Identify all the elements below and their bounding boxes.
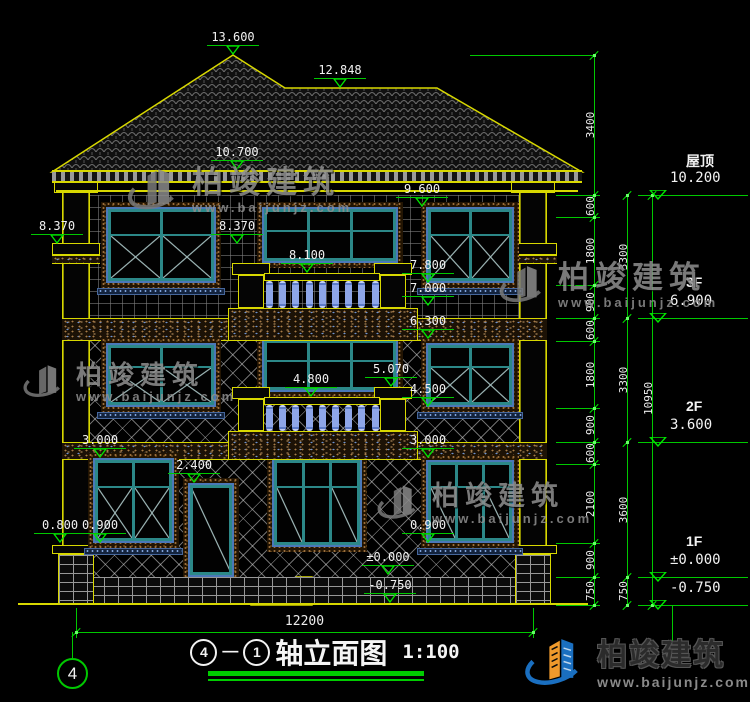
elevation-value: 3.000 [398,433,458,447]
watermark-title: 柏竣建筑 [192,167,352,200]
balcony-baluster [372,281,379,308]
elevation-value: 3.000 [70,433,130,447]
watermark: 柏竣建筑www.baijunjz.com [498,258,718,314]
elevation-value: -0.750 [360,578,420,592]
window-pane [304,487,331,543]
elevation-marker: 13.600 [203,30,263,57]
dim-label: 10950 [642,385,656,415]
brand-logo-footer: 柏竣建筑 www.baijunjz.com [524,618,750,702]
window-trim [267,453,367,552]
watermark-title: 柏竣建筑 [432,482,592,510]
elevation-value: 12.848 [310,63,370,77]
floor-label: 2F [686,398,746,414]
axis-circle-right: 1 [243,639,270,666]
floor-label: 1F [686,533,746,549]
elevation-triangle-icon [203,46,263,55]
dim-label: 600 [584,191,598,221]
drawing-title-block: 4 — 1 轴立面图 1:100 [160,634,490,670]
window-pane [134,487,170,539]
elevation-marker: 12.848 [310,63,370,90]
balcony-baluster [306,281,313,308]
axis-number-left: 4 [200,644,208,660]
floor-elevation: 3.600 [670,417,748,433]
window-pane-transom [276,462,303,487]
window-pane [331,487,358,543]
dim-tick-dot [626,317,629,320]
elevation-value: 4.800 [281,372,341,386]
window-sill [97,288,225,295]
balcony-baluster [319,281,326,308]
elevation-triangle-icon [164,474,224,483]
elevation-marker: 9.600 [392,182,452,209]
elevation-marker: 3.000 [70,433,130,460]
window-pane-transom [304,462,331,487]
watermark-url: www.baijunjz.com [558,295,718,310]
window-pane [471,367,511,403]
watermark: 柏竣建筑www.baijunjz.com [376,478,592,530]
elevation-value: 8.100 [277,248,337,262]
window-frame [274,460,360,545]
entry-door [188,483,234,577]
watermark-url: www.baijunjz.com [192,200,352,215]
watermark-logo-icon [376,478,424,530]
balcony-baluster [306,405,313,431]
ground-line [18,603,588,605]
floor-elevation: ±0.000 [670,552,748,568]
window-casement [303,462,331,543]
balcony-baluster [332,281,339,308]
plinth [62,577,547,604]
balcony-pedestal [238,399,264,431]
drawing-title-text: 轴立面图 [275,632,387,672]
dim-label: 900 [584,410,598,440]
brand-logo-title: 柏竣建筑 [597,630,750,674]
window-pane-transom [97,462,133,487]
extension-line [470,55,594,56]
floor-label: 屋顶 [686,151,746,167]
elevation-marker: 8.100 [277,248,337,275]
elevation-marker: 7.000 [398,281,458,308]
window-sill [417,548,523,555]
window-pane [276,487,303,543]
elevation-marker: 2.400 [164,458,224,485]
level-triangle-icon [649,567,667,577]
watermark-url: www.baijunjz.com [76,389,236,404]
axis-bubble-number: 4 [68,664,77,684]
elevation-triangle-icon [358,566,418,575]
window [272,458,362,547]
elevation-triangle-icon [398,449,458,458]
level-triangle-icon [649,432,667,442]
column-capital-abacus [52,255,100,264]
dim-label: 750 [584,576,598,606]
elevation-triangle-icon [281,388,341,397]
balcony-slab [228,431,418,460]
floor-elevation: 10.200 [670,170,748,186]
window-pane-transom [430,347,470,367]
balcony-baluster [345,405,352,431]
watermark-title: 柏竣建筑 [558,262,718,295]
axis-dash: — [222,643,238,661]
elevation-value: ±0.000 [358,550,418,564]
elevation-triangle-icon [398,297,458,306]
elevation-marker: -0.750 [360,578,420,605]
elevation-triangle-icon [398,330,458,339]
elevation-triangle-icon [207,235,267,244]
elevation-marker: 8.370 [27,219,87,246]
title-underline-thin [208,679,424,681]
window-sill [97,412,225,419]
window-sill [417,412,523,419]
dim-tick-dot [75,631,78,634]
cad-elevation-drawing: 4 — 1 轴立面图 1:100 4 柏竣建筑 www.baijunjz.co [0,0,750,702]
window-sill [84,548,183,555]
balcony-baluster [279,281,286,308]
elevation-value: 0.800 [30,518,90,532]
elevation-value: 7.000 [398,281,458,295]
dim-label: 600 [584,438,598,468]
balcony-baluster [266,405,273,431]
window-pane [352,231,394,259]
level-triangle-icon [649,185,667,195]
dim-tick-dot [593,54,596,57]
window-pane [162,235,213,279]
window-pane-transom [430,211,470,235]
dim-label: 3300 [617,365,631,395]
balcony-pedestal [238,275,264,308]
elevation-value: 6.300 [398,314,458,328]
elevation-marker: ±0.000 [358,550,418,577]
watermark-logo-icon [126,160,184,222]
balcony-baluster [345,281,352,308]
dim-label: 3600 [617,495,631,525]
elevation-triangle-icon [398,534,458,543]
dim-tick-dot [626,441,629,444]
balcony-baluster [332,405,339,431]
window-pane-transom [309,342,351,361]
window-pane-transom [471,347,511,367]
dim-label: 3400 [584,110,598,140]
window-casement [351,211,394,259]
watermark-logo-icon [22,358,68,408]
window-pane-transom [331,462,358,487]
elevation-value: 7.800 [398,258,458,272]
elevation-value: 9.600 [392,182,452,196]
window-casement [330,462,358,543]
dim-label: 750 [617,576,631,606]
balcony-baluster [266,281,273,308]
balcony-baluster [292,281,299,308]
title-underline-thick [208,671,424,676]
watermark-logo-icon [498,258,550,314]
window-pane-transom [471,211,511,235]
balcony-baluster [372,405,379,431]
brand-logo-url: www.baijunjz.com [597,674,750,690]
watermark-url: www.baijunjz.com [432,511,592,526]
balcony-baluster [279,405,286,431]
balcony-baluster [319,405,326,431]
axis-circle-left: 4 [190,639,217,666]
axis-number-right: 1 [253,644,261,660]
balcony-baluster [358,281,365,308]
elevation-triangle-icon [27,235,87,244]
elevation-value: 5.070 [361,362,421,376]
elevation-value: 2.400 [164,458,224,472]
window-casement [470,347,511,403]
elevation-triangle-icon [70,449,130,458]
elevation-triangle-icon [277,264,337,273]
elevation-triangle-icon [30,534,90,543]
elevation-marker: 8.370 [207,219,267,246]
axis-bubble-line [72,632,73,658]
door-trim [183,478,239,577]
elevation-value: 8.370 [27,219,87,233]
drawing-scale: 1:100 [402,641,459,663]
dim-label: 900 [584,545,598,575]
bottom-dim-label: 12200 [275,614,335,628]
window-pane-transom [266,342,308,361]
extension-line [76,608,77,638]
elevation-marker: 4.800 [281,372,341,399]
balcony-slab [228,308,418,341]
elevation-value: 10.700 [207,145,267,159]
balcony-baluster [358,405,365,431]
watermark-title: 柏竣建筑 [76,362,236,389]
watermark: 柏竣建筑www.baijunjz.com [22,358,236,408]
elevation-marker: 0.800 [30,518,90,545]
floor-elevation: -0.750 [670,580,748,596]
elevation-marker: 3.000 [398,433,458,460]
dim-label: 1800 [584,360,598,390]
balcony-baluster [292,405,299,431]
level-triangle-icon [649,595,667,605]
elevation-triangle-icon [310,79,370,88]
window-pane-transom [352,342,394,361]
column-pedestal [58,554,94,604]
elevation-triangle-icon [398,398,458,407]
axis-bubble: 4 [57,658,88,689]
window-casement [276,462,303,543]
watermark: 柏竣建筑www.baijunjz.com [126,160,352,222]
elevation-marker: 4.500 [398,382,458,409]
window-pane [110,235,161,279]
elevation-value: 4.500 [398,382,458,396]
elevation-triangle-icon [360,594,420,603]
brand-logo-icon [524,620,591,700]
elevation-marker: 6.300 [398,314,458,341]
column-pedestal [515,554,551,604]
elevation-value: 13.600 [203,30,263,44]
elevation-triangle-icon [392,198,452,207]
dim-tick-dot [626,194,629,197]
window-pane-transom [352,211,394,231]
dim-label: 600 [584,315,598,345]
